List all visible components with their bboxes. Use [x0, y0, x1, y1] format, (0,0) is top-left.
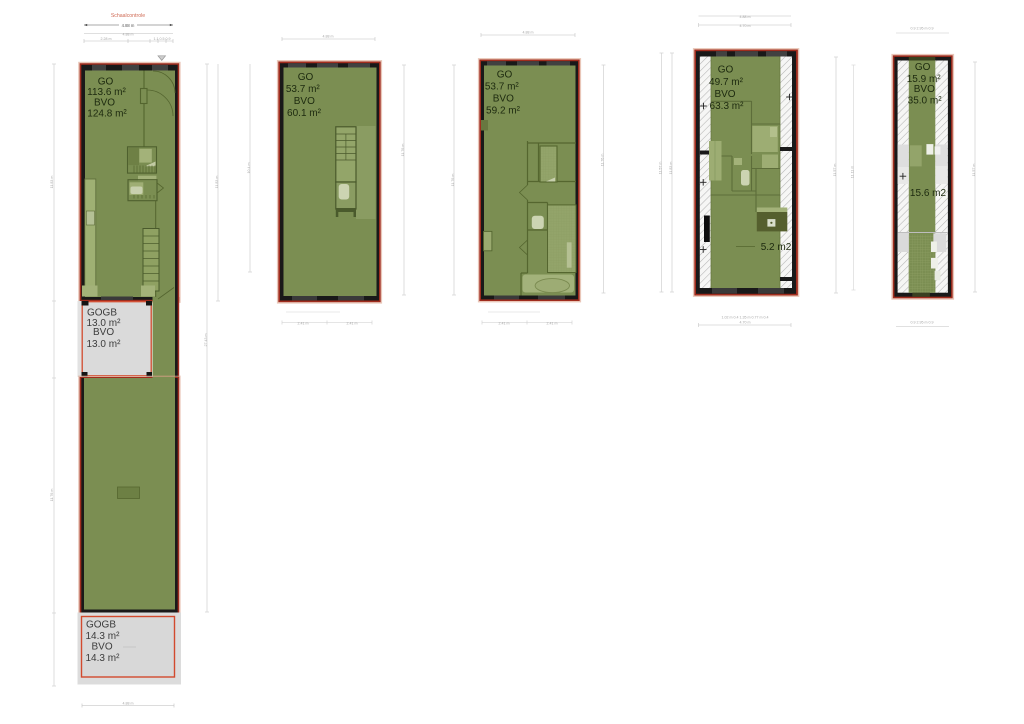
svg-text:11.83 m: 11.83 m — [50, 176, 54, 189]
svg-text:11.11 m: 11.11 m — [851, 166, 855, 178]
svg-text:15.6 m2: 15.6 m2 — [910, 188, 947, 199]
svg-text:60.1 m²: 60.1 m² — [287, 108, 322, 119]
svg-text:124.8 m²: 124.8 m² — [87, 109, 127, 120]
svg-text:10.4 m: 10.4 m — [247, 163, 251, 174]
svg-text:4.70 m: 4.70 m — [740, 24, 751, 28]
svg-text:53.7 m²: 53.7 m² — [485, 82, 520, 93]
svg-text:4.88 m: 4.88 m — [523, 31, 534, 35]
svg-text:14.3 m²: 14.3 m² — [86, 631, 121, 642]
svg-text:4.88 m: 4.88 m — [123, 702, 134, 706]
svg-text:2.41 m: 2.41 m — [499, 322, 510, 326]
svg-text:GOGB: GOGB — [86, 620, 116, 631]
svg-text:2.41 m: 2.41 m — [347, 322, 358, 326]
svg-text:GO: GO — [718, 65, 734, 76]
svg-text:11.57 m: 11.57 m — [833, 164, 837, 177]
svg-text:11.83 m: 11.83 m — [669, 162, 673, 175]
svg-text:4.88 m: 4.88 m — [123, 33, 134, 37]
svg-text:GO: GO — [915, 62, 931, 73]
svg-text:4.88 m: 4.88 m — [323, 35, 334, 39]
svg-text:BVO: BVO — [714, 89, 735, 100]
svg-text:11.57 m: 11.57 m — [659, 162, 663, 175]
svg-text:5.2 m2: 5.2 m2 — [761, 242, 792, 253]
svg-text:1.1 0.5 0.9: 1.1 0.5 0.9 — [154, 37, 171, 41]
svg-text:113.6 m²: 113.6 m² — [87, 87, 126, 98]
svg-text:4.70 m: 4.70 m — [740, 321, 751, 325]
svg-text:0.9 2.95 m 0.9: 0.9 2.95 m 0.9 — [911, 27, 934, 31]
svg-text:GO: GO — [98, 76, 114, 87]
svg-text:13.0 m²: 13.0 m² — [87, 339, 122, 350]
svg-text:BVO: BVO — [93, 327, 114, 338]
svg-text:4.88 m: 4.88 m — [122, 23, 135, 28]
svg-text:14.3 m²: 14.3 m² — [86, 653, 121, 664]
svg-text:BVO: BVO — [294, 96, 315, 107]
svg-text:35.0 m²: 35.0 m² — [908, 96, 943, 107]
svg-text:59.2 m²: 59.2 m² — [486, 106, 521, 117]
svg-text:BVO: BVO — [94, 98, 115, 109]
svg-text:1.02 m 0.4 1.35 m 0.77 m 0: 1.02 m 0.4 1.35 m 0.77 m 0.4 — [722, 316, 769, 320]
svg-text:63.3 m²: 63.3 m² — [710, 101, 745, 112]
svg-text:BVO: BVO — [914, 84, 935, 95]
svg-text:11.76 m: 11.76 m — [401, 144, 405, 157]
svg-text:49.7 m²: 49.7 m² — [709, 77, 744, 88]
svg-text:BVO: BVO — [92, 642, 113, 653]
svg-text:27.43 m: 27.43 m — [204, 334, 208, 347]
svg-text:4.88 m: 4.88 m — [740, 15, 751, 19]
svg-text:11.83 m: 11.83 m — [215, 176, 219, 189]
svg-text:Schaalcontrole: Schaalcontrole — [111, 13, 145, 19]
svg-text:BVO: BVO — [493, 94, 514, 105]
svg-text:2.41 m: 2.41 m — [298, 322, 309, 326]
svg-text:53.7 m²: 53.7 m² — [286, 84, 321, 95]
svg-text:11.76 m: 11.76 m — [601, 154, 605, 167]
svg-text:GO: GO — [497, 70, 513, 81]
svg-text:2.41 m: 2.41 m — [547, 322, 558, 326]
svg-text:11.76 m: 11.76 m — [451, 174, 455, 187]
svg-text:0.9 2.95 m 0.9: 0.9 2.95 m 0.9 — [911, 321, 934, 325]
svg-text:11.76 m: 11.76 m — [50, 489, 54, 502]
svg-text:GO: GO — [298, 72, 314, 83]
svg-text:11.57 m: 11.57 m — [972, 164, 976, 177]
svg-text:2.28 m: 2.28 m — [101, 37, 112, 41]
